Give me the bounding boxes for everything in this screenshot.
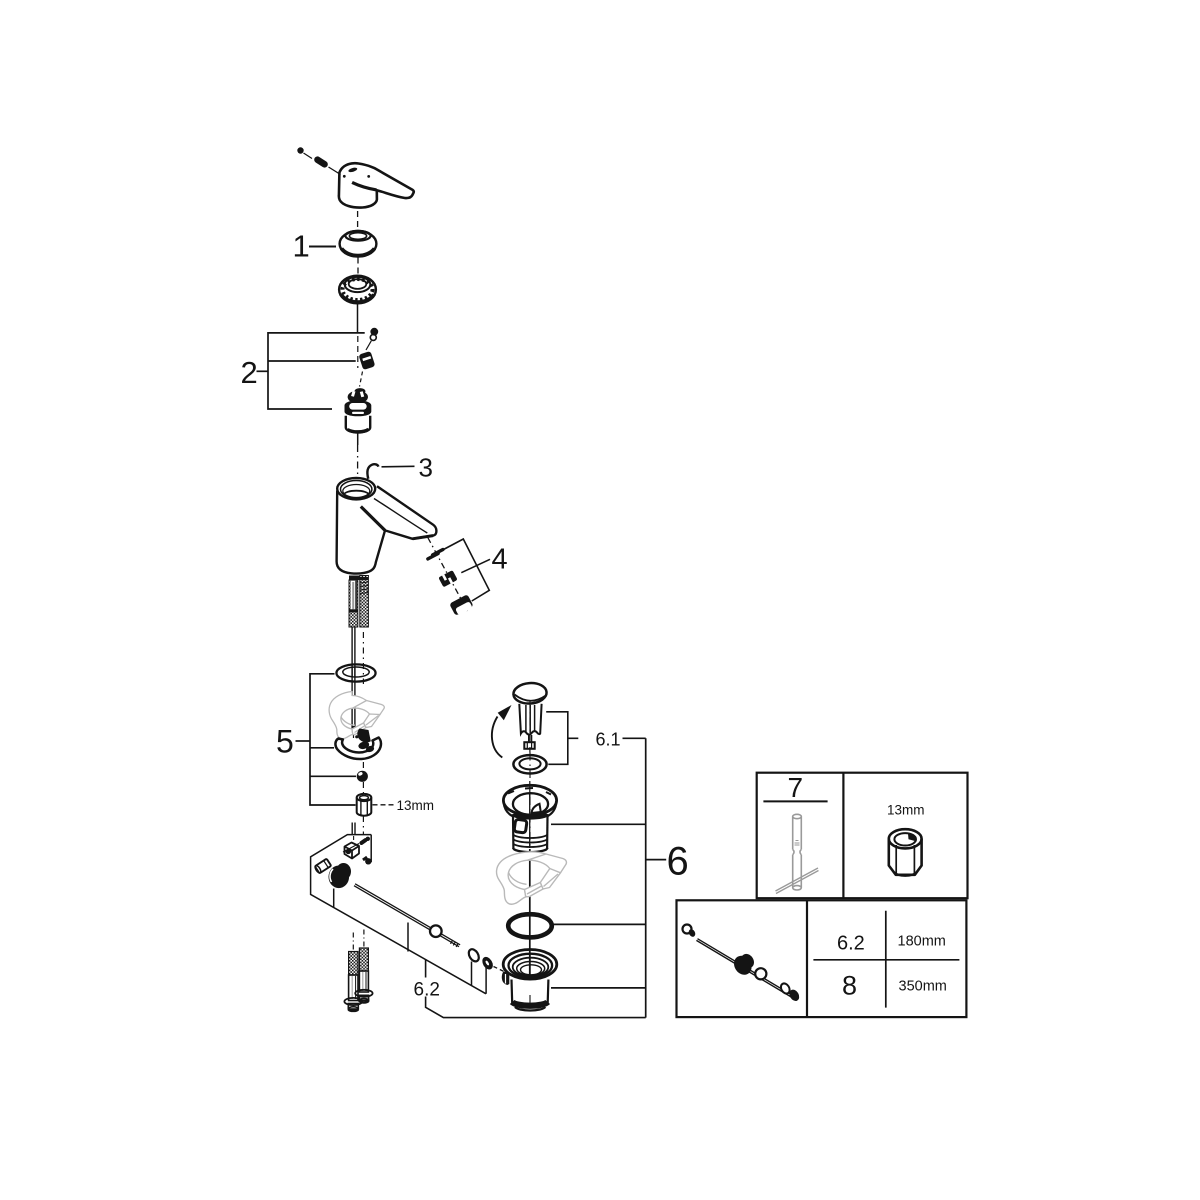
svg-text:6.1: 6.1 [596, 729, 621, 749]
svg-text:13mm: 13mm [887, 802, 925, 817]
svg-text:5: 5 [276, 724, 294, 760]
svg-text:8: 8 [842, 971, 857, 1001]
svg-text:180mm: 180mm [898, 934, 946, 950]
svg-text:2: 2 [241, 355, 258, 390]
svg-text:7: 7 [788, 772, 804, 803]
svg-text:3: 3 [419, 453, 433, 483]
svg-text:350mm: 350mm [899, 979, 947, 995]
svg-text:6.2: 6.2 [837, 933, 865, 955]
svg-text:4: 4 [492, 544, 508, 576]
svg-text:1: 1 [293, 229, 310, 264]
svg-text:6.2: 6.2 [414, 980, 440, 1001]
svg-text:6: 6 [667, 840, 689, 884]
svg-text:13mm: 13mm [397, 798, 435, 813]
